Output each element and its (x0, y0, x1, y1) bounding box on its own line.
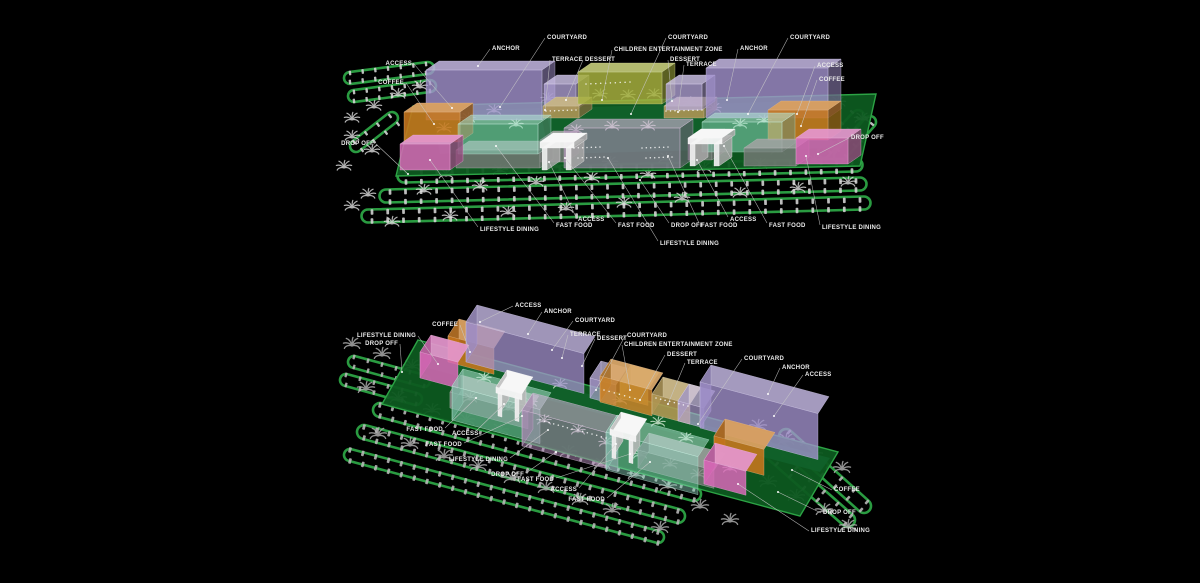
car-icon (420, 179, 423, 185)
table-dot (663, 157, 665, 159)
leader-dot (767, 393, 769, 395)
table-dot (654, 157, 656, 159)
car-icon (590, 194, 593, 200)
table-dot (550, 110, 552, 112)
palm-tree-icon (360, 188, 375, 198)
leader-dot (469, 351, 471, 353)
leader-dot (401, 371, 403, 373)
table-dot (670, 110, 672, 112)
zone-label: FAST FOOD (406, 427, 443, 433)
car-icon (653, 183, 656, 189)
entrance-arch (498, 392, 502, 417)
table-dot (548, 422, 550, 424)
car-icon (528, 196, 531, 202)
car-icon (730, 190, 733, 196)
zone-label: ACCESS (578, 217, 605, 223)
car-icon (497, 177, 500, 183)
table-dot (615, 82, 617, 84)
car-icon (823, 188, 826, 194)
table-dot (688, 110, 690, 112)
car-icon (435, 178, 438, 184)
table-dot (610, 82, 612, 84)
leader-dot (561, 357, 563, 359)
car-icon (777, 180, 780, 186)
leader-dot (479, 321, 481, 323)
leader-dot (667, 403, 669, 405)
car-icon (559, 195, 562, 201)
lifestyle-dining-block (564, 119, 693, 128)
car-icon (685, 211, 688, 217)
car-icon (497, 196, 500, 202)
leader-dot (696, 159, 698, 161)
car-icon (622, 212, 625, 218)
car-icon (681, 172, 684, 178)
table-dot (554, 110, 556, 112)
table-dot (659, 147, 661, 149)
car-icon (418, 208, 421, 214)
table-dot (697, 109, 699, 111)
car-icon (701, 201, 704, 207)
car-icon (451, 198, 454, 204)
car-icon (684, 182, 687, 188)
leader-dot (503, 403, 505, 405)
zone-label: TERRACE (686, 62, 717, 68)
zone-label: FAST FOOD (556, 223, 593, 229)
leader-dot (777, 491, 779, 493)
zone-label: COURTYARD (627, 333, 667, 339)
table-dot (608, 391, 610, 393)
car-icon (758, 171, 761, 177)
palm-tree-icon (343, 337, 360, 348)
car-icon (496, 206, 499, 212)
leader-dot (697, 423, 699, 425)
car-icon (730, 181, 733, 187)
zone-label: ACCESS (385, 61, 412, 67)
leader-dot (581, 365, 583, 367)
table-dot (645, 157, 647, 159)
car-icon (699, 182, 702, 188)
entrance-arch (540, 142, 574, 148)
car-icon (789, 170, 792, 176)
zone-label: ANCHOR (782, 365, 810, 371)
car-icon (670, 202, 673, 208)
car-icon (728, 171, 731, 177)
car-icon (796, 199, 799, 205)
leader-dot (499, 106, 501, 108)
leader-dot (671, 100, 673, 102)
table-dot (577, 429, 579, 431)
table-dot (544, 421, 546, 423)
palm-tree-icon (373, 347, 390, 358)
car-icon (606, 194, 609, 200)
table-dot (595, 157, 597, 159)
coffee-block (768, 101, 841, 110)
car-icon (405, 179, 408, 185)
car-icon (402, 208, 405, 214)
table-dot (571, 109, 573, 111)
zone-label: DROP OFF (671, 223, 704, 229)
roof-block (744, 148, 796, 166)
zone-label: LIFESTYLE DINING (660, 241, 719, 247)
car-icon (637, 183, 640, 189)
zone-label: CHILDREN ENTERTAINMENT ZONE (614, 47, 723, 53)
site-plan-canvas: ACCESSCOFFEEDROP OFFANCHORCOURTYARDTERRA… (0, 0, 1200, 583)
table-dot (614, 392, 616, 394)
leader-dot (800, 125, 802, 127)
table-dot (619, 82, 621, 84)
zone-label: FAST FOOD (618, 223, 655, 229)
leader-dot (615, 443, 617, 445)
car-icon (513, 186, 516, 192)
table-dot (664, 400, 666, 402)
car-icon (780, 199, 783, 205)
palm-tree-icon (336, 160, 351, 170)
table-dot (577, 157, 579, 159)
car-icon (701, 210, 704, 216)
table-dot (562, 426, 564, 428)
car-icon (780, 208, 783, 214)
leader-dot (565, 99, 567, 101)
car-icon (591, 204, 594, 210)
leader-dot (433, 123, 435, 125)
zone-label: COURTYARD (744, 356, 784, 362)
zone-label: FAST FOOD (568, 497, 605, 503)
car-icon (435, 198, 438, 204)
zone-label: TERRACE (687, 360, 718, 366)
car-icon (513, 196, 516, 202)
car-icon (544, 186, 547, 192)
table-dot (599, 156, 601, 158)
car-icon (590, 184, 593, 190)
car-icon (764, 209, 767, 215)
leader-dot (407, 173, 409, 175)
leader-dot (595, 389, 597, 391)
zone-label: COURTYARD (547, 35, 587, 41)
table-dot (582, 147, 584, 149)
leader-dot (629, 389, 631, 391)
table-dot (619, 394, 621, 396)
zone-label: LIFESTYLE DINING (811, 528, 870, 534)
zone-label: ACCESS (515, 303, 542, 309)
fast-food-block (458, 115, 551, 124)
zone-label: FAST FOOD (701, 223, 738, 229)
leader-dot (451, 107, 453, 109)
zone-label: ACCESS (805, 372, 832, 378)
table-dot (663, 146, 665, 148)
car-icon (808, 179, 811, 185)
leader-dot (629, 453, 631, 455)
lower-axonometric-view: ACCESSANCHORCOFFEELIFESTYLE DININGDROP O… (340, 303, 871, 546)
table-dot (558, 424, 560, 426)
car-icon (543, 176, 546, 182)
leader-dot (495, 145, 497, 147)
car-icon (434, 208, 437, 214)
table-dot (679, 110, 681, 112)
leader-dot (630, 113, 632, 115)
zone-label: COFFEE (834, 487, 860, 493)
table-dot (582, 157, 584, 159)
leader-dot (477, 65, 479, 67)
table-dot (603, 389, 605, 391)
table-dot (558, 110, 560, 112)
leader-dot (796, 113, 798, 115)
table-dot (567, 110, 569, 112)
table-dot (585, 83, 587, 85)
leader-dot (429, 159, 431, 161)
leader-dot (737, 483, 739, 485)
car-icon (434, 217, 437, 223)
leader-dot (747, 113, 749, 115)
car-icon (666, 173, 669, 179)
leader-dot (521, 415, 523, 417)
leader-dot (723, 145, 725, 147)
car-icon (804, 169, 807, 175)
car-icon (528, 214, 531, 220)
car-icon (697, 172, 700, 178)
car-icon (451, 178, 454, 184)
table-dot (571, 428, 573, 430)
zone-label: DROP OFF (341, 141, 374, 147)
car-icon (528, 205, 531, 211)
zone-label: DESSERT (667, 352, 697, 358)
car-icon (544, 195, 547, 201)
car-icon (638, 203, 641, 209)
table-dot (660, 398, 662, 400)
table-dot (587, 432, 589, 434)
car-icon (604, 174, 607, 180)
table-dot (591, 433, 593, 435)
table-dot (671, 156, 673, 158)
leader-dot (667, 155, 669, 157)
car-icon (859, 197, 862, 203)
car-icon (482, 197, 485, 203)
table-dot (624, 81, 626, 83)
zone-label: TERRACE (552, 57, 583, 63)
zone-label: LIFESTYLE DINING (480, 227, 539, 233)
table-dot (687, 405, 689, 407)
table-dot (595, 146, 597, 148)
lifestyle-dining-block (796, 138, 848, 164)
car-icon (823, 179, 826, 185)
table-dot (624, 395, 626, 397)
zone-label: DROP OFF (823, 510, 856, 516)
zone-label: ANCHOR (740, 46, 768, 52)
car-icon (839, 188, 842, 194)
fast-food-block (458, 124, 538, 154)
table-dot (605, 437, 607, 439)
table-dot (674, 402, 676, 404)
car-icon (635, 174, 638, 180)
table-dot (665, 110, 667, 112)
leader-dot (817, 153, 819, 155)
table-dot (591, 147, 593, 149)
car-icon (558, 175, 561, 181)
entrance-arch (542, 148, 547, 170)
zone-label: DESSERT (597, 336, 627, 342)
table-dot (683, 404, 685, 406)
zone-label: DROP OFF (851, 135, 884, 141)
entrance-arch (629, 439, 633, 464)
table-dot (603, 156, 605, 158)
car-icon (420, 198, 423, 204)
car-icon (544, 214, 547, 220)
table-dot (586, 147, 588, 149)
table-dot (601, 436, 603, 438)
palm-tree-icon (366, 100, 381, 110)
car-icon (559, 214, 562, 220)
car-icon (777, 189, 780, 195)
table-dot (667, 146, 669, 148)
table-dot (539, 419, 541, 421)
car-icon (748, 200, 751, 206)
car-icon (654, 211, 657, 217)
car-icon (835, 169, 838, 175)
leader-dot (548, 161, 550, 163)
leader-dot (475, 397, 477, 399)
leader-dot (437, 363, 439, 365)
table-dot (629, 396, 631, 398)
children-entertainment-zone (578, 63, 675, 72)
leader-dot (639, 179, 641, 181)
car-icon (715, 182, 718, 188)
table-dot (692, 110, 694, 112)
car-icon (733, 209, 736, 215)
car-icon (827, 207, 830, 213)
car-icon (466, 178, 469, 184)
palm-tree-icon (721, 513, 738, 524)
car-icon (637, 193, 640, 199)
car-icon (820, 169, 823, 175)
zone-label: COURTYARD (575, 318, 615, 324)
entrance-arch (690, 144, 695, 166)
zone-label: COURTYARD (790, 35, 830, 41)
zone-label: LIFESTYLE DINING (822, 225, 881, 231)
entrance-arch (566, 148, 571, 170)
car-icon (748, 209, 751, 215)
zone-label: ANCHOR (544, 309, 572, 315)
zone-label: CHILDREN ENTERTAINMENT ZONE (624, 342, 733, 348)
car-icon (685, 202, 688, 208)
zone-label: COFFEE (432, 322, 458, 328)
car-icon (465, 216, 468, 222)
table-dot (658, 157, 660, 159)
car-icon (743, 171, 746, 177)
palm-tree-icon (416, 184, 431, 194)
entrance-arch (688, 138, 722, 144)
lifestyle-dining-block (400, 144, 450, 170)
car-icon (774, 170, 777, 176)
car-icon (764, 200, 767, 206)
table-dot (562, 110, 564, 112)
leader-dot (649, 461, 651, 463)
table-dot (683, 110, 685, 112)
leader-dot (726, 99, 728, 101)
car-icon (496, 215, 499, 221)
car-icon (717, 210, 720, 216)
car-icon (653, 192, 656, 198)
palm-tree-icon (584, 172, 599, 182)
table-dot (599, 146, 601, 148)
table-dot (582, 431, 584, 433)
table-dot (567, 427, 569, 429)
car-icon (481, 216, 484, 222)
table-dot (578, 147, 580, 149)
zone-label: COURTYARD (668, 35, 708, 41)
car-icon (575, 185, 578, 191)
table-dot (654, 147, 656, 149)
zone-label: FAST FOOD (517, 477, 554, 483)
car-icon (699, 191, 702, 197)
car-icon (843, 207, 846, 213)
table-dot (590, 157, 592, 159)
car-icon (843, 198, 846, 204)
car-icon (668, 183, 671, 189)
palm-tree-icon (833, 461, 850, 472)
leader-dot (551, 349, 553, 351)
car-icon (796, 208, 799, 214)
table-dot (701, 109, 703, 111)
car-icon (670, 211, 673, 217)
table-dot (573, 147, 575, 149)
car-icon (859, 206, 862, 212)
entrance-arch (714, 144, 719, 166)
car-icon (811, 198, 814, 204)
zone-label: ACCESS (550, 487, 577, 493)
car-icon (606, 184, 609, 190)
palm-tree-icon (732, 187, 747, 197)
car-icon (733, 200, 736, 206)
table-dot (596, 435, 598, 437)
leader-dot (677, 111, 679, 113)
leader-dot (555, 451, 557, 453)
zone-label: FAST FOOD (425, 442, 462, 448)
car-icon (389, 189, 392, 195)
leader-dot (791, 469, 793, 471)
leader-dot (805, 155, 807, 157)
zone-label: ACCESS (817, 63, 844, 69)
car-icon (389, 199, 392, 205)
car-icon (371, 218, 374, 224)
car-icon (575, 194, 578, 200)
zone-label: ACCESS (452, 431, 479, 437)
zone-label: LIFESTYLE DINING (449, 457, 508, 463)
zone-label: DROP OFF (365, 341, 398, 347)
table-dot (629, 81, 631, 83)
car-icon (386, 209, 389, 215)
leader-dot (607, 157, 609, 159)
zone-label: ACCESS (730, 217, 757, 223)
zone-label: COFFEE (819, 77, 845, 83)
table-dot (590, 83, 592, 85)
car-icon (712, 172, 715, 178)
table-dot (655, 397, 657, 399)
car-icon (512, 206, 515, 212)
table-dot (678, 403, 680, 405)
table-dot (641, 147, 643, 149)
diagram-stage: ACCESSCOFFEEDROP OFFANCHORCOURTYARDTERRA… (0, 0, 1200, 583)
leader-dot (547, 429, 549, 431)
car-icon (811, 207, 814, 213)
table-dot (674, 110, 676, 112)
table-dot (634, 398, 636, 400)
zone-label: FAST FOOD (769, 223, 806, 229)
zone-label: LIFESTYLE DINING (357, 333, 416, 339)
table-dot (586, 157, 588, 159)
table-dot (646, 147, 648, 149)
car-icon (575, 204, 578, 210)
leader-dot (527, 333, 529, 335)
car-icon (607, 203, 610, 209)
